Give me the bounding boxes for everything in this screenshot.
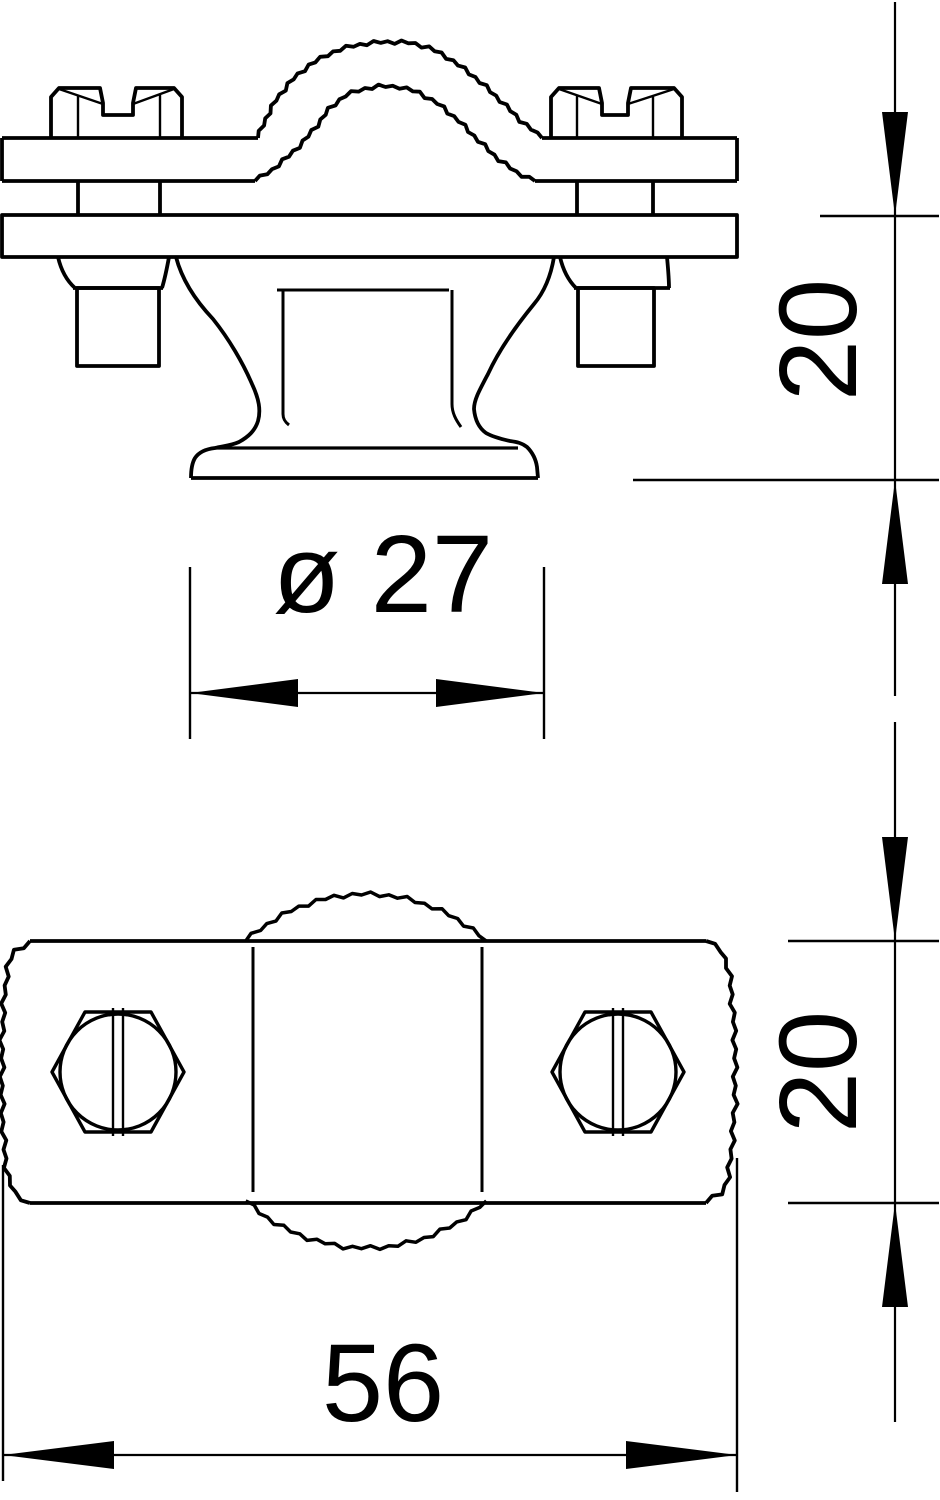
- right-head-circle: [560, 1014, 676, 1130]
- dim-arrow-right-icon: [436, 679, 544, 707]
- dim-arrow-up-icon: [882, 1203, 908, 1307]
- right-screw-head: [551, 88, 682, 138]
- plate-right-edge: [706, 941, 738, 1203]
- right-screw-slot: [613, 1008, 623, 1136]
- technical-drawing-page: 20 ø 27 20 56: [0, 0, 940, 1500]
- dim-label-plan-height: 20: [757, 1011, 880, 1133]
- left-screw-slot: [113, 1008, 123, 1136]
- left-bolt-plan: [52, 1008, 184, 1136]
- funnel-right-profile: [474, 257, 554, 478]
- bushing-inner-lines: [277, 290, 461, 427]
- dim-arrow-left-icon: [190, 679, 298, 707]
- left-screw-head: [51, 88, 182, 138]
- left-screw-nut: [77, 288, 159, 366]
- lower-bar: [2, 215, 737, 257]
- right-screw-neck: [560, 257, 670, 288]
- left-screw: [51, 88, 182, 366]
- bushing-silhouette-lines: [253, 947, 482, 1192]
- base-circle-top-arc: [246, 892, 487, 941]
- dim-label-plan-width: 56: [322, 1322, 444, 1445]
- left-screw-shaft: [78, 181, 160, 215]
- lower-strap: [2, 215, 737, 257]
- dim-plan-height: 20: [757, 837, 939, 1307]
- dim-arrow-left-icon: [3, 1441, 114, 1469]
- side-view: [2, 41, 737, 479]
- dimension-drawing: 20 ø 27 20 56: [0, 0, 940, 1500]
- right-screw-nut: [578, 288, 654, 366]
- center-bushing: [176, 257, 554, 478]
- right-bolt-plan: [552, 1008, 684, 1136]
- dim-arrow-down-icon: [882, 112, 908, 216]
- base-circle-bottom-arc: [246, 1201, 487, 1250]
- saddle-inner-curve: [255, 85, 535, 181]
- left-hex-head: [52, 1012, 184, 1132]
- right-hex-head: [552, 1012, 684, 1132]
- dim-foot-diameter: ø 27: [190, 513, 544, 739]
- dim-label-foot-diameter: ø 27: [273, 513, 493, 636]
- funnel-left-profile: [176, 257, 259, 478]
- dim-plan-width: 56: [3, 1158, 737, 1492]
- dim-label-side-height: 20: [757, 279, 880, 401]
- dim-arrow-right-icon: [626, 1441, 737, 1469]
- right-screw-shaft: [577, 181, 653, 215]
- left-head-circle: [60, 1014, 176, 1130]
- dim-arrow-up-icon: [882, 480, 908, 584]
- right-screw: [551, 88, 682, 366]
- plan-view: [0, 892, 738, 1249]
- dim-arrow-down-icon: [882, 837, 908, 941]
- plate-left-edge: [0, 941, 30, 1203]
- dimensions: 20 ø 27 20 56: [3, 2, 939, 1492]
- left-screw-neck: [58, 257, 169, 288]
